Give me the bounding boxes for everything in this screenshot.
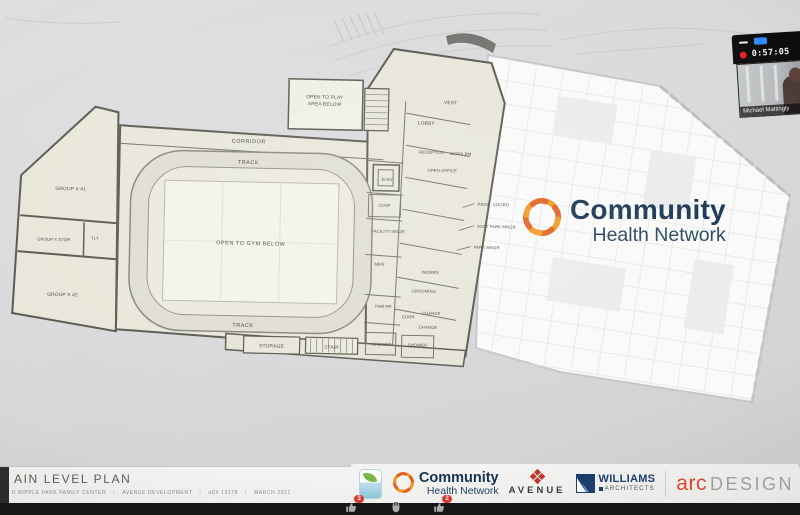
room-label-park-mngr: PARK MNGR bbox=[474, 245, 500, 251]
community-health-network-watermark: Community Health Network bbox=[521, 196, 726, 246]
community-footer-line1: Community bbox=[419, 471, 499, 486]
raised-hand-icon bbox=[390, 501, 402, 513]
reaction-count-badge: 2 bbox=[442, 495, 452, 503]
room-label-group-x2: GROUP X #2 bbox=[47, 292, 78, 299]
window-pane bbox=[759, 65, 764, 101]
recording-indicator[interactable]: 0:57:05 bbox=[732, 31, 800, 64]
room-label-prog-coord: PROG. COORD bbox=[478, 202, 509, 208]
community-footer-logo: Community Health Network bbox=[392, 471, 499, 497]
williams-icon bbox=[576, 474, 595, 493]
avenue-logo: AVENUE bbox=[509, 471, 566, 496]
room-label-men: MEN bbox=[374, 262, 384, 267]
stair-upper bbox=[364, 88, 389, 130]
room-label-open-play-2: AREA BELOW bbox=[308, 101, 342, 108]
arcdesign-logo: arc DESIGN bbox=[676, 473, 794, 494]
recording-timer: 0:57:05 bbox=[751, 47, 789, 59]
room-label-change-2: CHANGE bbox=[419, 325, 438, 330]
developer-name: AVENUE DEVELOPMENT bbox=[122, 490, 192, 496]
record-dot-icon bbox=[740, 51, 747, 58]
square-icon bbox=[599, 487, 603, 491]
design-label: DESIGN bbox=[710, 475, 794, 493]
thumbs-up-reaction[interactable]: 2 bbox=[433, 500, 447, 514]
participant-video-thumbnail[interactable]: Michael Mattingly bbox=[736, 60, 800, 118]
thumbs-up-icon bbox=[433, 501, 445, 513]
project-name: D RIPPLE PARK FAMILY CENTER bbox=[12, 490, 106, 496]
minimize-icon[interactable] bbox=[739, 41, 748, 44]
window-pane bbox=[745, 66, 750, 102]
title-block-edge bbox=[0, 467, 9, 504]
room-label-group-x1: GROUP X #1 bbox=[55, 186, 86, 193]
community-starburst-icon bbox=[521, 196, 563, 238]
arc-label: arc bbox=[676, 473, 707, 494]
reaction-count-badge: 3 bbox=[354, 495, 364, 503]
raised-hand-reaction[interactable] bbox=[390, 500, 404, 514]
sheet-title: AIN LEVEL PLAN bbox=[14, 472, 131, 486]
leaf-icon bbox=[363, 470, 377, 484]
watermark-line1: Community bbox=[570, 196, 726, 224]
footer-logos: Community Health Network AVENUE WILLIAMS… bbox=[351, 464, 798, 503]
diamond-icon bbox=[529, 469, 545, 485]
room-label-women: WOMEN bbox=[422, 270, 439, 275]
sheet-subtitle: D RIPPLE PARK FAMILY CENTER | AVENUE DEV… bbox=[12, 490, 291, 496]
room-label-asst-park-mngr: ASST PARK MNGR bbox=[477, 224, 516, 230]
avenue-label: AVENUE bbox=[509, 486, 566, 496]
room-label-conf: CONF bbox=[378, 203, 391, 208]
watermark-line2: Health Network bbox=[593, 226, 726, 246]
room-label-work-rm: WORK RM bbox=[450, 151, 472, 156]
room-label-corridor: CORRIDOR bbox=[232, 139, 266, 146]
room-label-lobby: LOBBY bbox=[418, 120, 436, 126]
job-number: aD# 19178 bbox=[208, 490, 238, 496]
room-label-track-bottom: TRACK bbox=[232, 323, 253, 329]
sheet-date: MARCH 2021 bbox=[254, 490, 291, 496]
williams-line1: WILLIAMS bbox=[599, 474, 656, 485]
room-label-vest: VEST bbox=[444, 100, 457, 106]
williams-line2: ARCHITECTS bbox=[605, 486, 655, 492]
room-label-storage: STORAGE bbox=[259, 343, 284, 350]
room-label-open-office: OPEN OFFICE bbox=[427, 168, 457, 174]
room-label-group-x-stor: GROUP X STOR bbox=[37, 237, 70, 243]
participant-name: Michael Mattingly bbox=[740, 103, 800, 117]
separator: | bbox=[113, 490, 115, 496]
williams-architects-logo: WILLIAMS ARCHITECTS bbox=[576, 474, 656, 493]
room-label-tlt: TLT bbox=[91, 236, 99, 241]
room-label-stair: STAIR bbox=[324, 345, 339, 351]
room-label-track-top: TRACK bbox=[238, 160, 259, 166]
site-linework bbox=[5, 12, 748, 76]
park-logo bbox=[359, 469, 382, 499]
floor-plan-drawing: CORRIDOR TRACK OPEN TO GYM BELOW TRACK S… bbox=[0, 0, 800, 515]
room-label-facility-mngr: FACILITY MNGR bbox=[371, 229, 404, 235]
room-label-shower-1: SHOWER bbox=[372, 342, 392, 347]
community-starburst-icon bbox=[392, 471, 415, 494]
screen-share-view: CORRIDOR TRACK OPEN TO GYM BELOW TRACK S… bbox=[0, 0, 800, 515]
thumbs-up-reaction[interactable]: 3 bbox=[345, 500, 359, 514]
room-label-corr: CORR bbox=[402, 314, 415, 319]
bottom-bar: 3 2 bbox=[0, 503, 800, 515]
meeting-overlay: 0:57:05 Michael Mattingly bbox=[732, 31, 800, 118]
window-pane bbox=[773, 65, 778, 101]
separator: | bbox=[245, 490, 247, 496]
logo-divider bbox=[665, 471, 666, 497]
thumbs-up-icon bbox=[345, 501, 357, 513]
room-label-fam-rr: FAM RR bbox=[375, 304, 392, 309]
room-label-open-play-1: OPEN TO PLAY bbox=[306, 94, 344, 101]
community-footer-line2: Health Network bbox=[427, 486, 499, 497]
entry-canopy bbox=[446, 33, 496, 53]
meeting-control-button[interactable] bbox=[754, 37, 767, 45]
room-label-shower-2: SHOWER bbox=[408, 342, 428, 347]
room-label-reception: RECEPTION bbox=[419, 150, 444, 156]
separator: | bbox=[199, 490, 201, 496]
room-label-change-1: CHANGE bbox=[422, 311, 441, 316]
room-label-elev: ELEV bbox=[381, 177, 392, 182]
room-label-grooming: GROOMING bbox=[411, 288, 436, 294]
main-floor-plan: CORRIDOR TRACK OPEN TO GYM BELOW TRACK S… bbox=[11, 41, 519, 367]
